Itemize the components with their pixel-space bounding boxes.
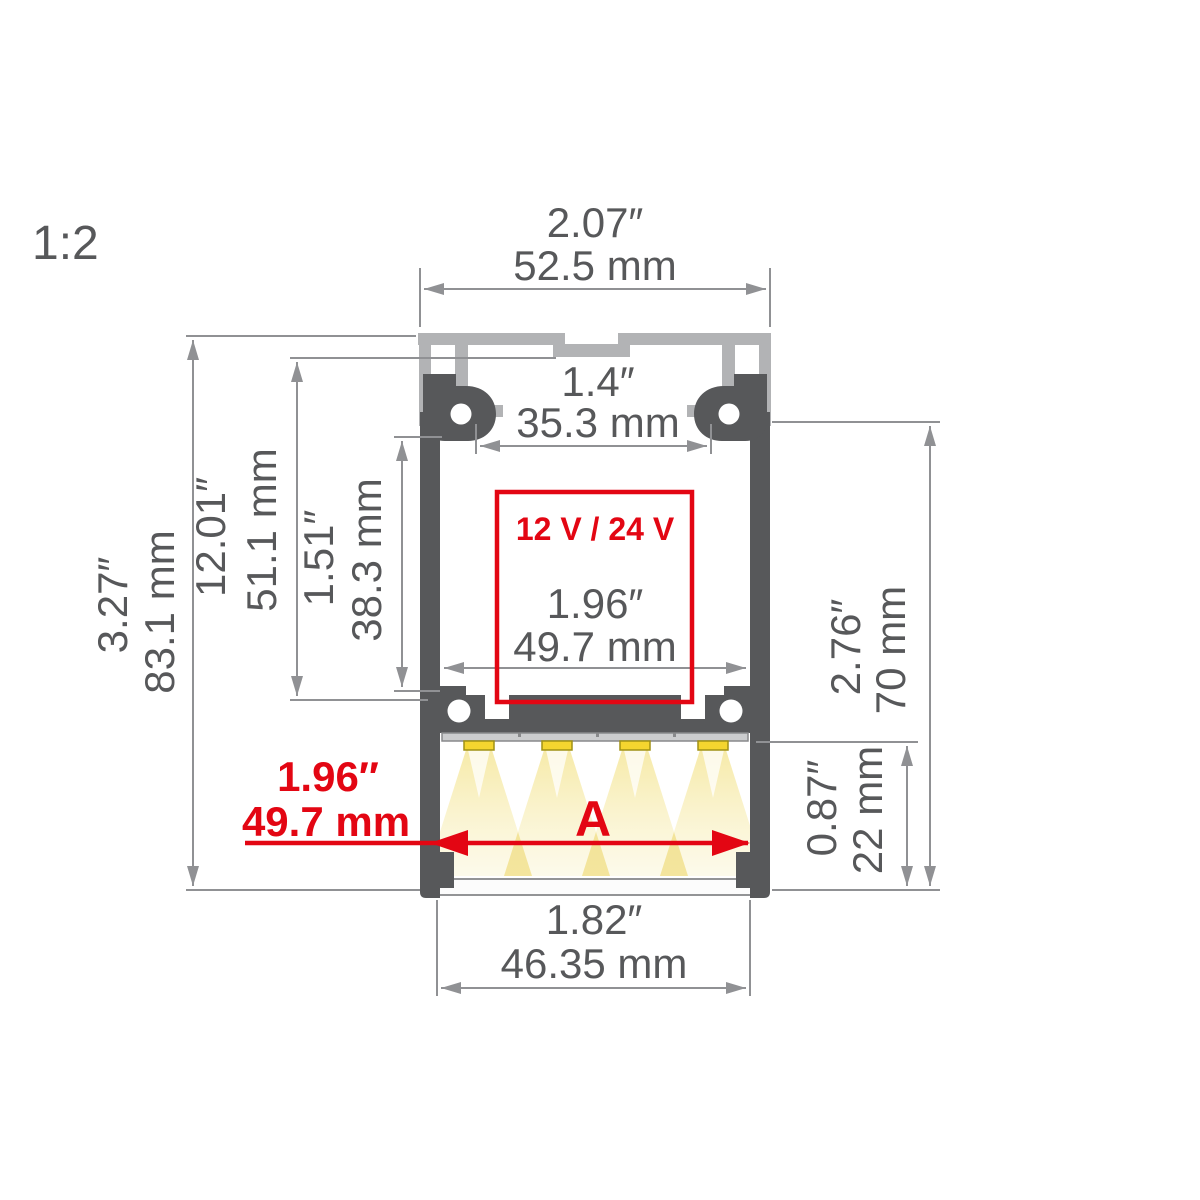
led-emitters — [464, 741, 728, 750]
right-hook-screw-hole — [719, 404, 740, 425]
upper-height-inch-label: 12.01″ — [187, 477, 234, 597]
light-height-inch-label: 0.87″ — [798, 760, 845, 857]
bottom-width-inch-label: 1.82″ — [546, 896, 643, 943]
light-height-mm-label: 22 mm — [844, 746, 891, 874]
cavity-height-inch-label: 1.51″ — [295, 510, 342, 607]
diffuser-lens — [436, 879, 754, 895]
led-pcb-strip — [442, 733, 748, 741]
partition-right-screw-boss — [720, 700, 743, 723]
body-height-inch-label: 2.76″ — [822, 599, 869, 696]
bottom-width-mm-label: 46.35 mm — [501, 940, 688, 987]
profile-dimension-drawing: 1:2 — [0, 0, 1200, 1200]
pcb-mark — [518, 733, 521, 737]
partition-right-shoulder — [724, 686, 750, 697]
partition-left-shoulder — [440, 686, 466, 697]
inner-width-inch-label: 1.96″ — [547, 580, 644, 627]
slot-width-mm-label: 35.3 mm — [516, 399, 679, 446]
scale-label: 1:2 — [32, 217, 99, 270]
total-height-mm-label: 83.1 mm — [136, 530, 183, 693]
led-chip — [620, 741, 650, 750]
left-hook-screw-hole — [451, 404, 472, 425]
slot-width-inch-label: 1.4″ — [561, 358, 634, 405]
led-width-inch-label: 1.96″ — [277, 753, 379, 800]
pcb-mark — [673, 733, 676, 737]
top-width-inch-label: 2.07″ — [547, 199, 644, 246]
total-height-inch-label: 3.27″ — [89, 557, 136, 654]
inner-width-mm-label: 49.7 mm — [513, 623, 676, 670]
profile-cutouts — [448, 404, 743, 723]
led-chip — [542, 741, 572, 750]
cover-top-right — [618, 333, 770, 345]
cover-top-left — [418, 333, 565, 345]
upper-height-mm-label: 51.1 mm — [238, 448, 285, 611]
voltage-label: 12 V / 24 V — [516, 511, 675, 547]
arrow-a-label: A — [575, 791, 611, 847]
top-width-mm-label: 52.5 mm — [513, 242, 676, 289]
partition-left-screw-boss — [448, 700, 471, 723]
pcb-mark — [596, 733, 599, 737]
cavity-height-mm-label: 38.3 mm — [343, 478, 390, 641]
led-chip — [464, 741, 494, 750]
technical-drawing-page: 1:2 — [0, 0, 1200, 1200]
led-width-mm-label: 49.7 mm — [242, 798, 410, 845]
cover-center-notch — [553, 344, 630, 357]
led-chip — [698, 741, 728, 750]
body-height-mm-label: 70 mm — [867, 586, 914, 714]
